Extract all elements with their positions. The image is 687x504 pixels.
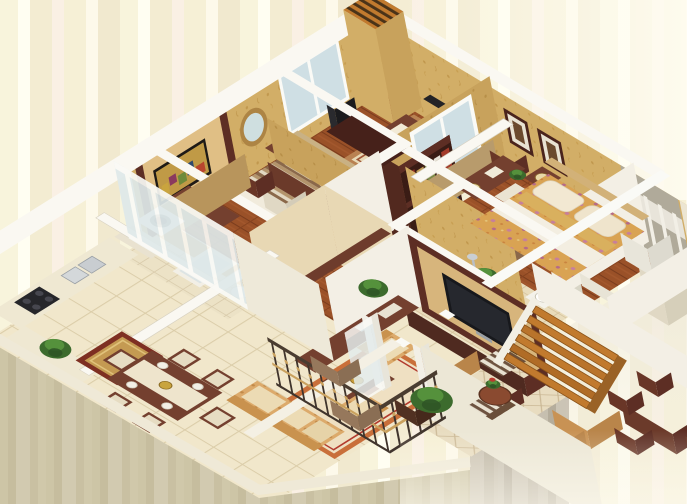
floorplan-render xyxy=(0,0,687,504)
floorplan-screenshot: Isometric 3D floor plan render of a thre… xyxy=(0,0,687,504)
bottom-right-fade xyxy=(400,430,687,504)
